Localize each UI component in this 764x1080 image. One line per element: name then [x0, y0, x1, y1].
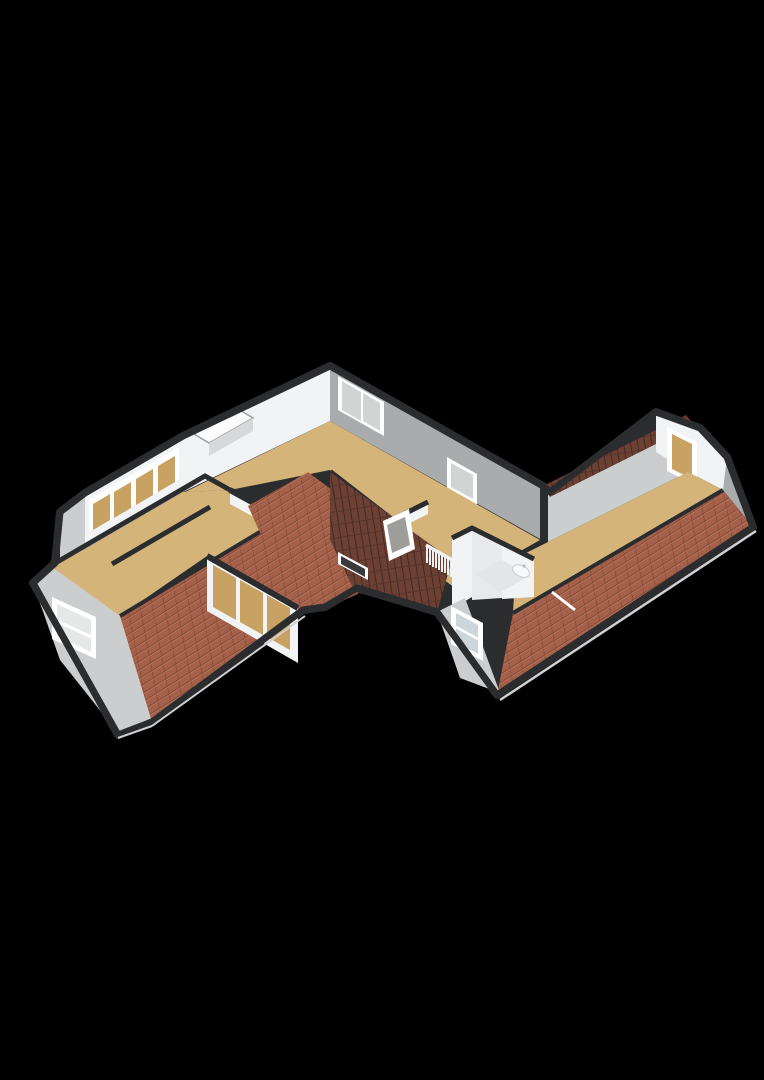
- bathroom-wall: [452, 528, 472, 609]
- floorplan-3d-render: [0, 0, 764, 1080]
- floorplan-canvas: [0, 0, 764, 1080]
- faucet: [522, 564, 525, 567]
